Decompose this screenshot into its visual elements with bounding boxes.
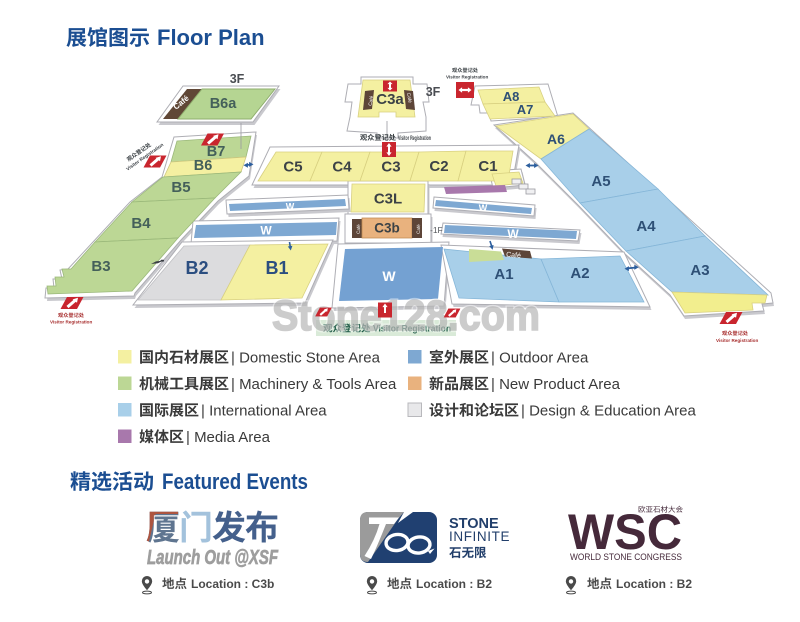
svg-text:Visitor Registration: Visitor Registration bbox=[398, 136, 431, 142]
svg-text:3F: 3F bbox=[426, 85, 441, 99]
svg-text:B6a: B6a bbox=[210, 96, 238, 112]
svg-text:Launch Out @XSF: Launch Out @XSF bbox=[147, 547, 279, 569]
svg-text:Location : C3b: Location : C3b bbox=[191, 577, 274, 591]
svg-text:Featured Events: Featured Events bbox=[162, 469, 308, 494]
svg-text:| Domestic Stone Area: | Domestic Stone Area bbox=[231, 350, 381, 367]
svg-text:C3L: C3L bbox=[374, 191, 402, 208]
svg-text:A6: A6 bbox=[547, 131, 565, 147]
svg-text:Location : B2: Location : B2 bbox=[616, 577, 692, 591]
svg-text:B5: B5 bbox=[171, 179, 190, 196]
svg-text:| New Product Area: | New Product Area bbox=[491, 376, 621, 393]
svg-text:C5: C5 bbox=[283, 159, 302, 176]
svg-text:B2: B2 bbox=[185, 258, 208, 278]
svg-text:Visitor Registration: Visitor Registration bbox=[446, 75, 488, 80]
svg-text:INFINITE: INFINITE bbox=[449, 529, 510, 544]
svg-text:Visitor Registration: Visitor Registration bbox=[50, 320, 92, 325]
svg-text:W: W bbox=[507, 227, 519, 241]
svg-text:| Design & Education Area: | Design & Education Area bbox=[521, 403, 696, 420]
svg-text:Location : B2: Location : B2 bbox=[416, 577, 492, 591]
svg-text:B6: B6 bbox=[194, 158, 213, 174]
svg-text:C3a: C3a bbox=[376, 91, 404, 108]
svg-text:B4: B4 bbox=[131, 215, 151, 232]
svg-text:W: W bbox=[479, 203, 488, 213]
svg-text:W: W bbox=[260, 224, 272, 238]
svg-text:| Outdoor Area: | Outdoor Area bbox=[491, 350, 589, 367]
svg-text:A5: A5 bbox=[591, 173, 610, 190]
svg-text:Stone128.com: Stone128.com bbox=[272, 292, 540, 340]
svg-text:A7: A7 bbox=[517, 102, 534, 117]
svg-text:C1: C1 bbox=[478, 158, 497, 175]
svg-text:W: W bbox=[286, 202, 295, 212]
svg-text:B3: B3 bbox=[91, 258, 110, 275]
svg-text:| International Area: | International Area bbox=[201, 403, 327, 420]
svg-text:A2: A2 bbox=[570, 265, 589, 282]
svg-text:W: W bbox=[382, 268, 396, 284]
svg-text:WORLD STONE CONGRESS: WORLD STONE CONGRESS bbox=[570, 552, 682, 562]
svg-text:B1: B1 bbox=[265, 258, 288, 278]
svg-text:A4: A4 bbox=[636, 218, 656, 235]
svg-text:A3: A3 bbox=[690, 262, 709, 279]
svg-text:C4: C4 bbox=[332, 159, 352, 176]
svg-text:C3b: C3b bbox=[374, 221, 400, 236]
svg-text:Café: Café bbox=[506, 252, 521, 260]
svg-text:A1: A1 bbox=[494, 266, 513, 283]
svg-text:Visitor Registration: Visitor Registration bbox=[716, 338, 758, 343]
svg-text:Café: Café bbox=[356, 224, 361, 234]
svg-text:| Machinery & Tools Area: | Machinery & Tools Area bbox=[231, 376, 397, 393]
svg-text:Floor Plan: Floor Plan bbox=[157, 25, 265, 50]
svg-text:C2: C2 bbox=[429, 158, 448, 175]
svg-text:| Media Area: | Media Area bbox=[186, 429, 271, 446]
svg-text:Café: Café bbox=[416, 224, 421, 234]
svg-text:3F: 3F bbox=[230, 72, 245, 86]
svg-text:-1F: -1F bbox=[430, 225, 443, 235]
svg-text:C3: C3 bbox=[381, 159, 400, 176]
